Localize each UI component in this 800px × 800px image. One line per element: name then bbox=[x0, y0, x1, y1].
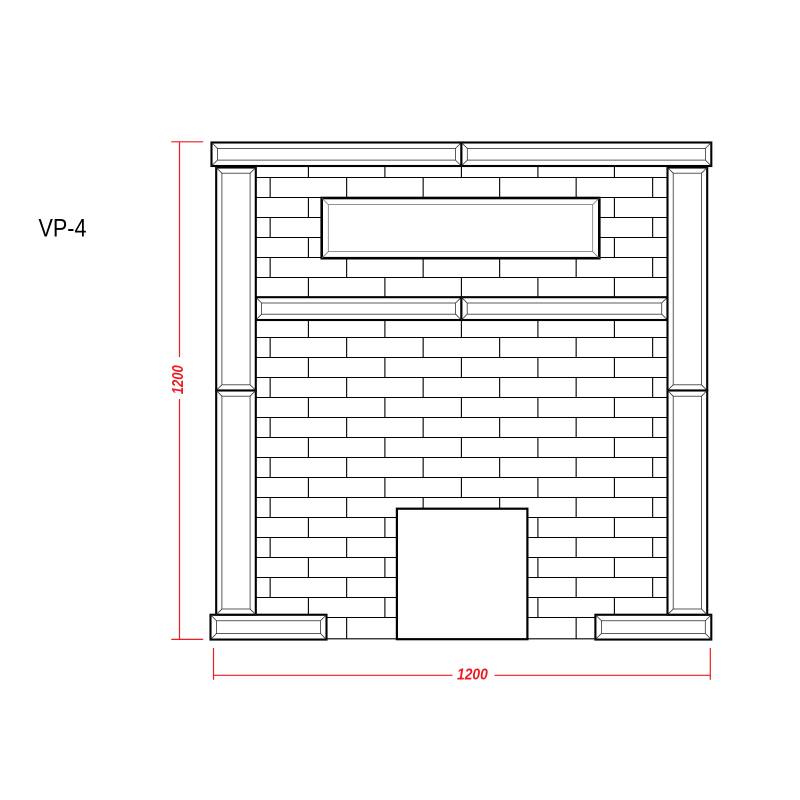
svg-text:1200: 1200 bbox=[170, 365, 187, 394]
svg-text:1200: 1200 bbox=[457, 667, 488, 684]
svg-text:VP-4: VP-4 bbox=[39, 214, 87, 242]
